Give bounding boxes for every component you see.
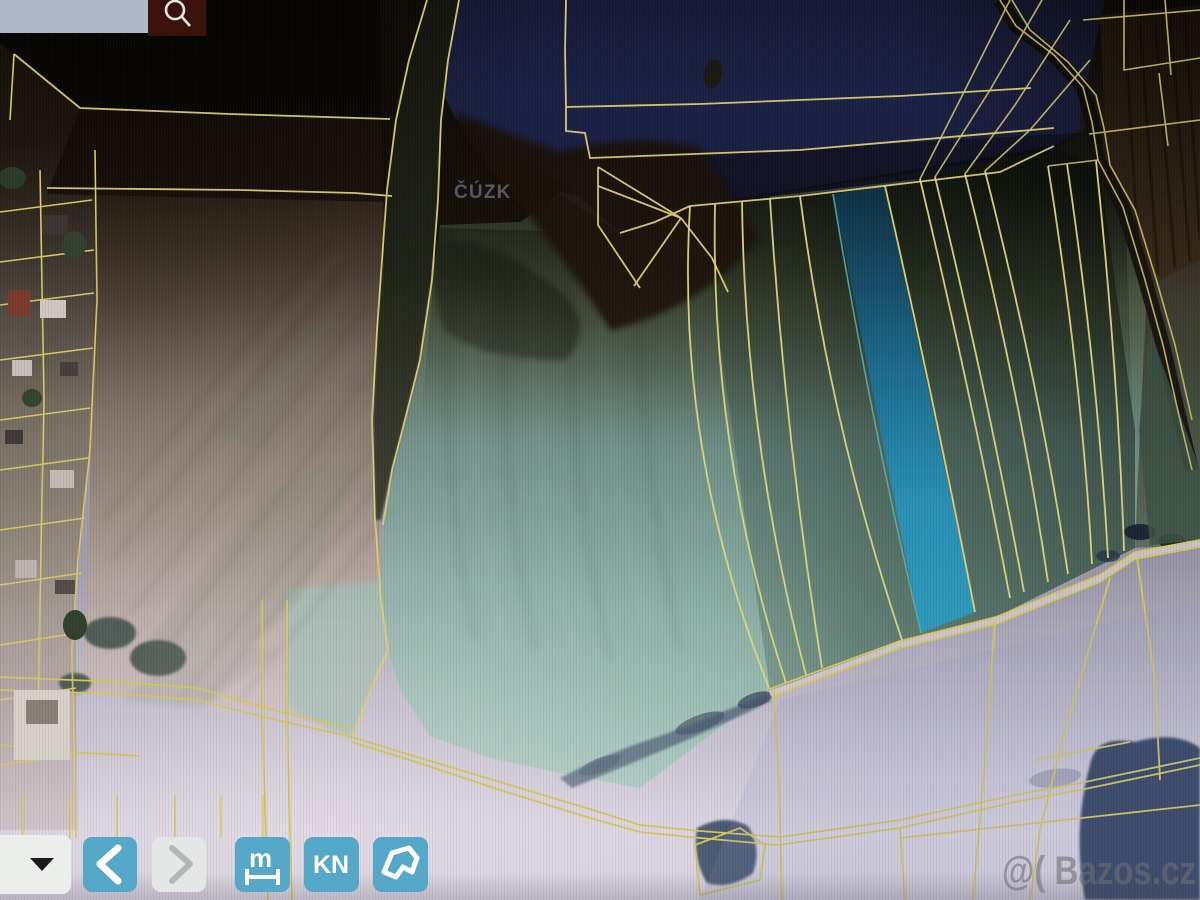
svg-text:m: m (249, 843, 272, 873)
svg-text:ČÚZK: ČÚZK (454, 181, 512, 203)
svg-text:@( Bazos.cz: @( Bazos.cz (1002, 849, 1196, 893)
svg-text:KN: KN (313, 851, 349, 879)
